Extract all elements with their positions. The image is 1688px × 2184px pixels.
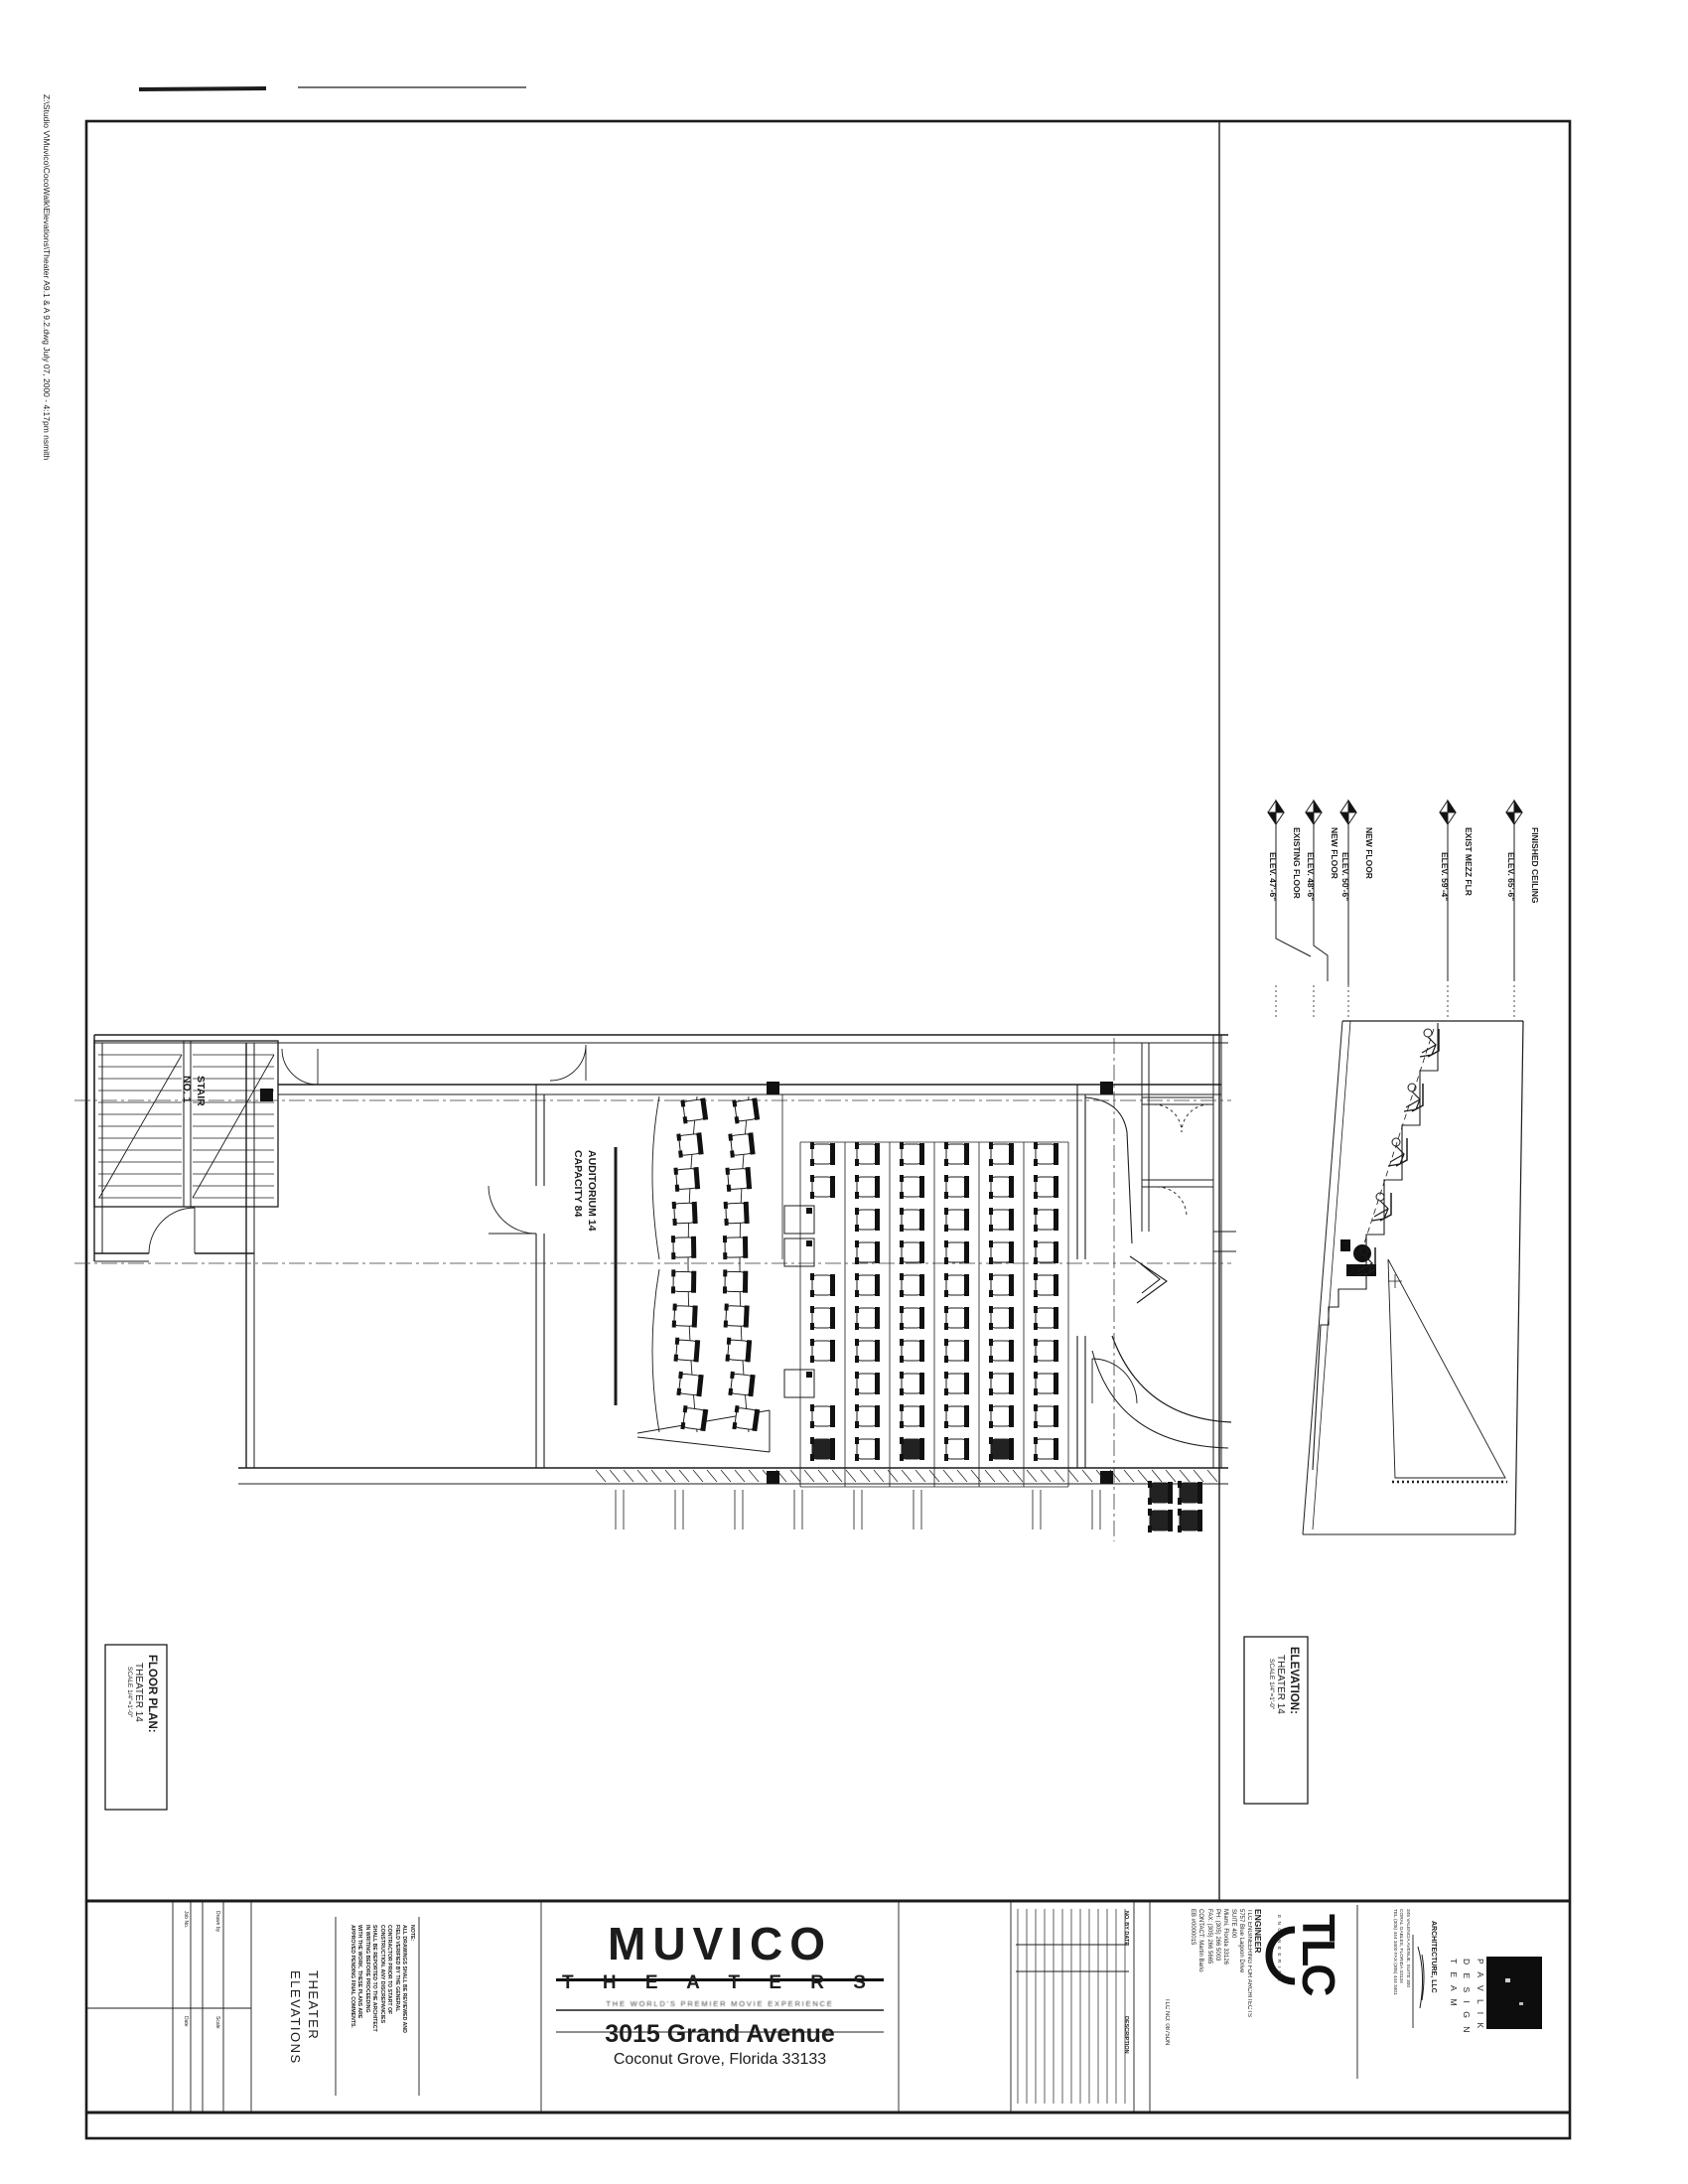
stamp	[1486, 1957, 1542, 2029]
floor-plan-scale: SCALE 1/4"=1'-0"	[125, 1667, 133, 1717]
datum-elev-new-floor-50: ELEV. 50'-6"	[1339, 852, 1350, 901]
elevation-title: ELEVATION:	[1286, 1647, 1301, 1714]
datum-label-new-floor-48: NEW FLOOR	[1329, 827, 1339, 879]
drawing-sheet: TLC Z:\Studio V\Muvico\CocoWalk\Elevatio…	[0, 0, 1688, 2184]
datum-elev-existing-floor: ELEV. 47'-6"	[1267, 852, 1278, 901]
stair-label: STAIR NO. 1	[180, 1076, 207, 1106]
datum-elev-exist-mezz: ELEV. 59'-4"	[1439, 852, 1450, 901]
auditorium-label: AUDITORIUM 14 CAPACITY 84	[571, 1150, 598, 1231]
plan-seats	[671, 1096, 1058, 1461]
datum-label-exist-mezz: EXIST MEZZ FLR	[1463, 827, 1474, 896]
field-scale: Scale	[214, 2016, 221, 2029]
field-drawn-by: Drawn by	[214, 1911, 221, 1932]
elevation-datum-symbol	[1306, 801, 1328, 1019]
elevation-datum-leaders	[1268, 801, 1522, 1019]
adjacent-auditorium-seats	[1148, 1481, 1202, 1532]
elevation-view	[1303, 1021, 1523, 1534]
datum-elev-new-floor-48: ELEV. 48'-6"	[1305, 852, 1316, 901]
architect-firm: ARCHITECTURE, LLC	[1429, 1921, 1438, 1993]
elevation-scale: SCALE 1/4"=1'-0"	[1267, 1659, 1275, 1709]
brand-address-line1: 3015 Grand Avenue	[541, 2020, 899, 2049]
datum-label-new-floor-50: NEW FLOOR	[1363, 827, 1374, 879]
field-job-no: Job No.	[183, 1911, 190, 1928]
architect-address: 345 VALENCIA AVENUE, SUITE 300 CORAL GAB…	[1390, 1909, 1410, 1995]
field-date: Date	[183, 2016, 190, 2027]
tlc-logo-side-text: E N G I N E E R I N G	[1275, 1915, 1281, 1982]
sheet-borders	[86, 87, 1570, 2138]
brand-block: MUVICO T H E A T E R S THE WORLD'S PREMI…	[541, 1903, 899, 2112]
brand-address-line2: Coconut Grove, Florida 33133	[541, 2051, 899, 2069]
datum-elev-finished-ceiling: ELEV. 65'-6"	[1505, 852, 1516, 901]
engineer-heading: ENGINEER	[1252, 1909, 1263, 1953]
elevation-datum-symbol	[1268, 801, 1311, 1019]
floor-plan-subtitle: THEATER 14	[132, 1663, 145, 1722]
architect-team-name: P A V L I K D E S I G N T E A M	[1446, 1959, 1486, 2035]
sheet-linework: TLC	[0, 0, 1688, 2184]
revisions-header-no-by-date: NO. BY DATE	[1122, 1911, 1129, 1946]
elevation-subtitle: THEATER 14	[1274, 1655, 1287, 1714]
sheet-title: THEATER ELEVATIONS	[287, 1970, 322, 2065]
elevation-datum-symbol	[1340, 801, 1356, 1019]
tlc-number: TLC NO: 0875DN	[1162, 1998, 1170, 2045]
bottom-corridor	[596, 1470, 1217, 1529]
stair	[94, 1041, 278, 1207]
brand-word-theaters: T H E A T E R S	[541, 1972, 899, 1994]
general-note: NOTE: ALL DRAWINGS SHALL BE REVIEWED AND…	[348, 1925, 415, 2033]
floor-plan-title: FLOOR PLAN:	[144, 1655, 159, 1733]
engineer-info: TLC ENGINEERING FOR ARCHITECTS 5757 Blue…	[1189, 1909, 1253, 2017]
revisions-header-description: DESCRIPTION	[1122, 2016, 1129, 2054]
file-path-note: Z:\Studio V\Muvico\CocoWalk\Elevations\T…	[41, 94, 52, 460]
datum-label-finished-ceiling: FINISHED CEILING	[1529, 827, 1540, 904]
view-label-boxes	[105, 1637, 1308, 1810]
brand-tagline: THE WORLD'S PREMIER MOVIE EXPERIENCE	[541, 1999, 899, 2008]
elevation-datum-symbol	[1440, 801, 1456, 1019]
datum-label-existing-floor: EXISTING FLOOR	[1291, 827, 1302, 899]
svg-text:TLC: TLC	[1293, 1914, 1344, 1995]
brand-logo-text: MUVICO	[541, 1917, 899, 1970]
elevation-datum-symbol	[1506, 801, 1522, 1019]
